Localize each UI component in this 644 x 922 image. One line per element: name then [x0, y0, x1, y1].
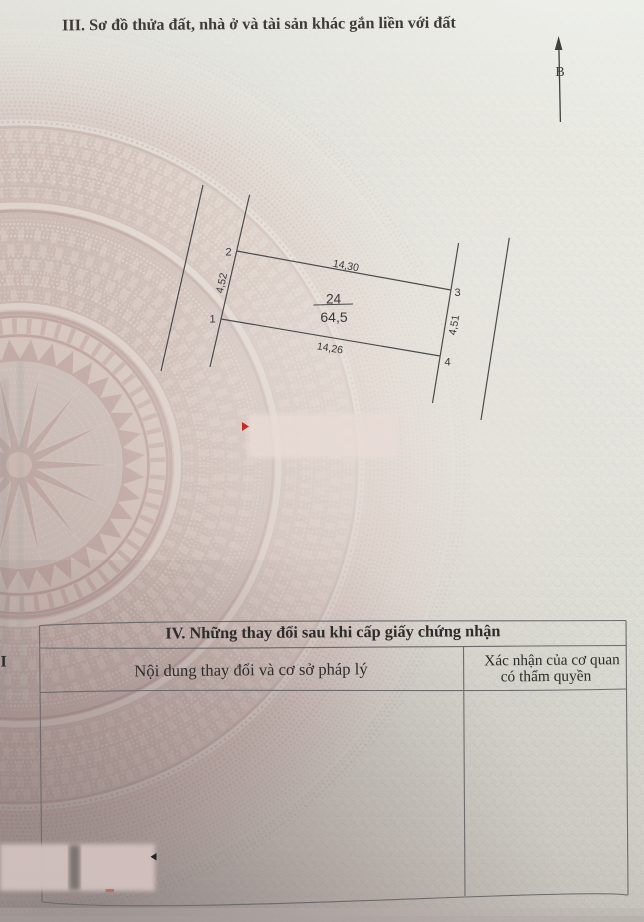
svg-text:có thẩm quyền: có thẩm quyền [501, 668, 592, 686]
svg-text:Xác nhận của cơ quan: Xác nhận của cơ quan [484, 651, 620, 669]
svg-text:I: I [1, 654, 7, 671]
svg-text:64,5: 64,5 [320, 309, 347, 325]
svg-text:Nội dung thay đổi và cơ sở phá: Nội dung thay đổi và cơ sở pháp lý [134, 659, 368, 680]
svg-text:IV. Những thay đổi sau khi cấp: IV. Những thay đổi sau khi cấp giấy chứn… [165, 621, 500, 642]
svg-text:4: 4 [444, 357, 450, 369]
svg-text:III. Sơ đồ thửa đất, nhà ở và: III. Sơ đồ thửa đất, nhà ở và tài sản kh… [62, 14, 456, 35]
svg-text:24: 24 [326, 292, 342, 307]
svg-text:B: B [555, 65, 564, 80]
svg-text:3: 3 [454, 287, 460, 299]
svg-text:2: 2 [225, 247, 231, 259]
svg-text:1: 1 [210, 314, 216, 326]
